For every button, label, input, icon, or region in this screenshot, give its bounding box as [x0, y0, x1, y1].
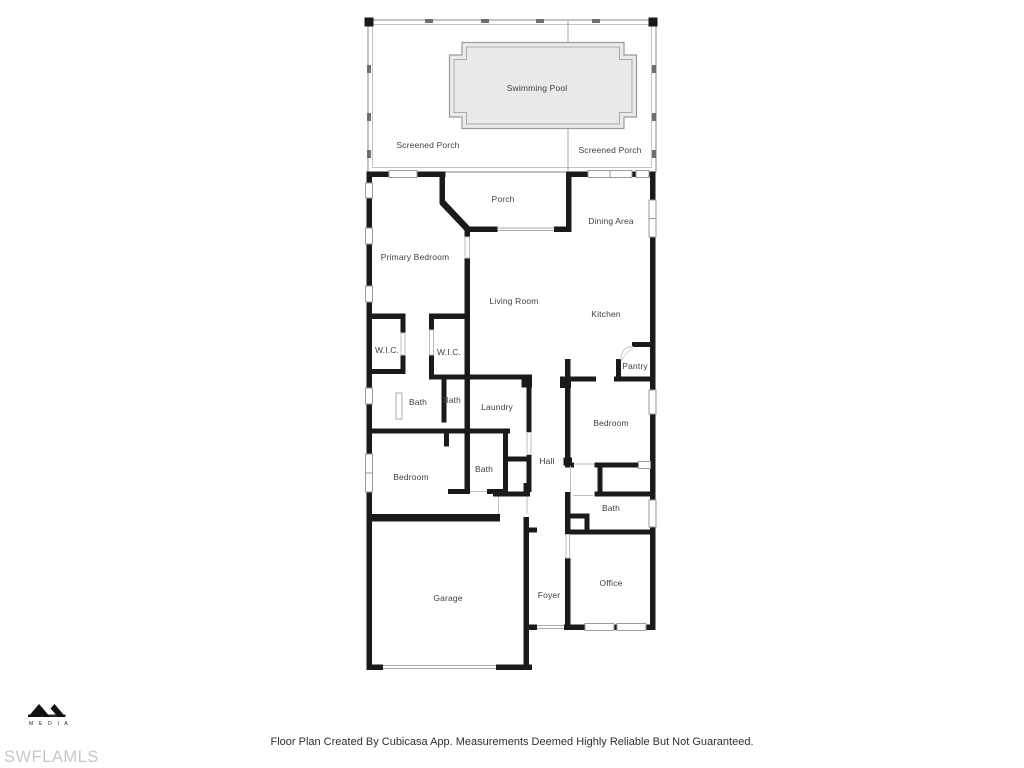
- room-label-primary-bedroom: Primary Bedroom: [381, 252, 449, 262]
- room-label-bedroom-left: Bedroom: [393, 472, 429, 482]
- media-logo-text: M E D I A: [29, 721, 68, 727]
- porch-sliding-door: [498, 228, 555, 231]
- room-label-porch: Porch: [492, 194, 515, 204]
- room-label-screened-porch-left: Screened Porch: [396, 140, 459, 150]
- floor-plan-page: Swimming Pool Screened Porch Screened Po…: [0, 0, 1024, 768]
- mls-watermark: SWFLAMLS: [4, 748, 99, 767]
- room-label-bath-center: Bath: [475, 464, 493, 474]
- media-logo-mark: [28, 704, 66, 717]
- floor-plan-drawing: [0, 0, 1024, 768]
- room-label-dining-area: Dining Area: [588, 216, 634, 226]
- room-label-bath-primary-left: Bath: [409, 397, 427, 407]
- footer-disclaimer: Floor Plan Created By Cubicasa App. Meas…: [0, 736, 1024, 748]
- room-label-wic-right: W.I.C.: [437, 347, 461, 357]
- room-label-kitchen: Kitchen: [591, 309, 620, 319]
- room-label-foyer: Foyer: [538, 590, 560, 600]
- room-label-bath-primary-right: Bath: [443, 395, 461, 405]
- room-label-office: Office: [600, 578, 623, 588]
- room-label-hall: Hall: [539, 456, 554, 466]
- room-label-living-room: Living Room: [490, 296, 539, 306]
- room-label-pantry: Pantry: [622, 361, 647, 371]
- room-label-swimming-pool: Swimming Pool: [507, 83, 568, 93]
- media-logo: M E D I A: [26, 702, 68, 728]
- room-label-laundry: Laundry: [481, 402, 513, 412]
- interior-walls-left: [367, 232, 538, 533]
- room-label-garage: Garage: [433, 593, 462, 603]
- room-label-wic-left: W.I.C.: [375, 345, 399, 355]
- room-label-bath-right: Bath: [602, 503, 620, 513]
- room-label-bedroom-right: Bedroom: [593, 418, 629, 428]
- room-label-screened-porch-right: Screened Porch: [578, 145, 641, 155]
